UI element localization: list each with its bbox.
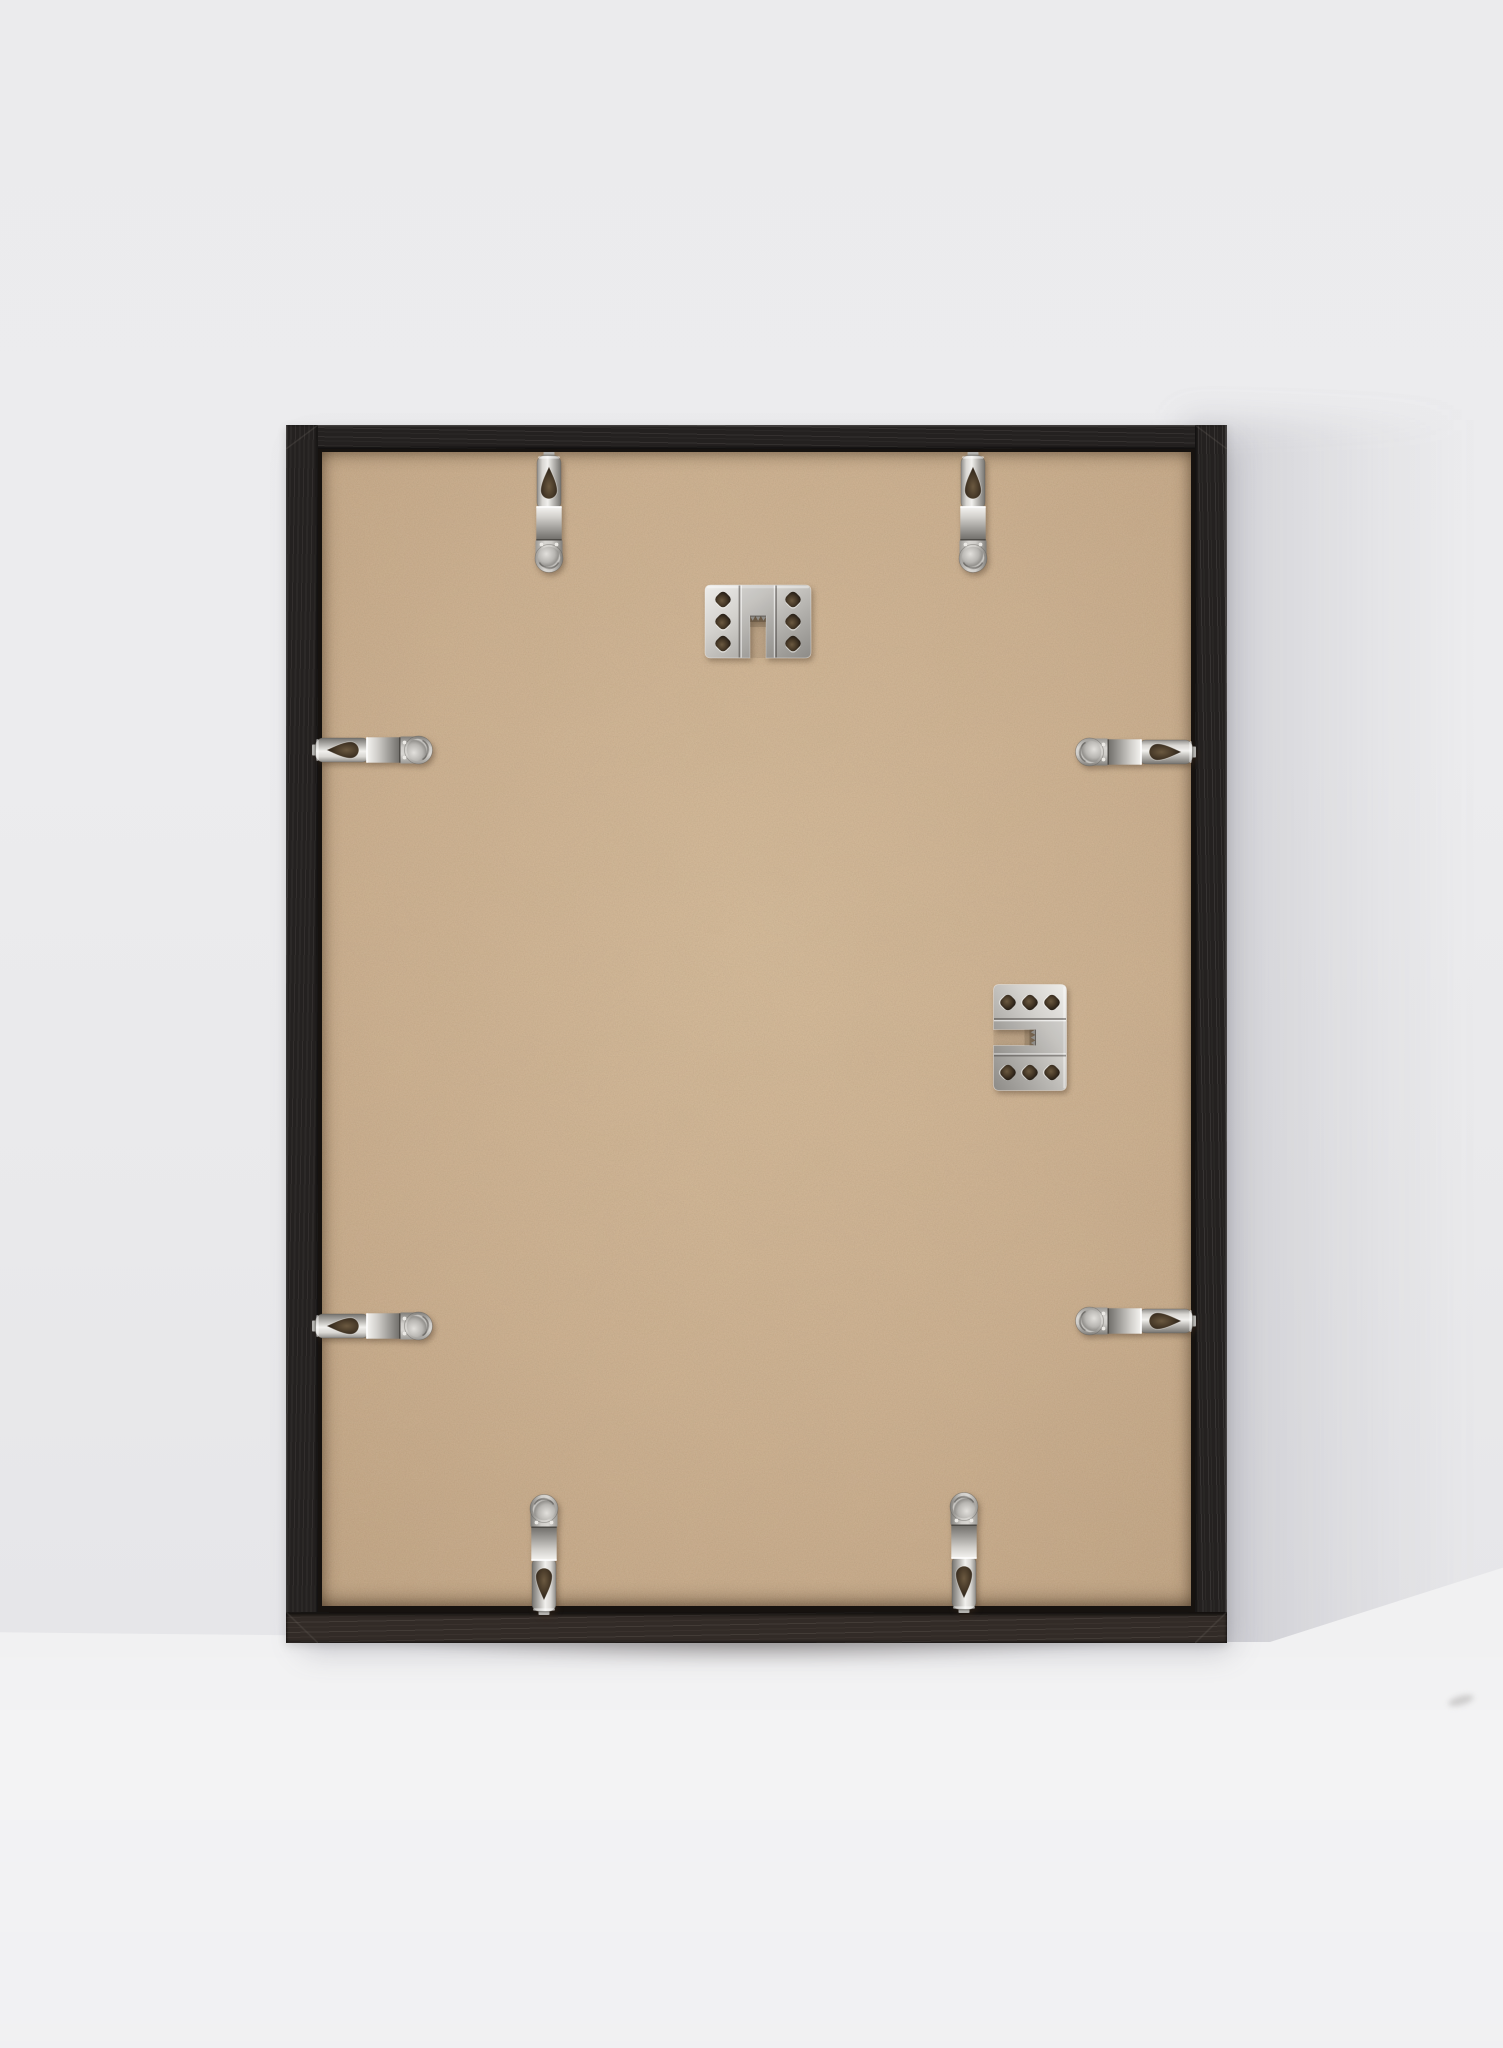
hardware-layer [0, 0, 1503, 2048]
spring-clip-icon [1072, 1302, 1196, 1340]
photo-canvas [0, 0, 1503, 2048]
spring-clip-icon [954, 452, 992, 576]
right-lower-spring-clip [1072, 1302, 1196, 1340]
bottom-right-spring-clip [945, 1489, 983, 1613]
spring-clip-icon [1072, 733, 1196, 771]
bottom-left-spring-clip [525, 1491, 563, 1615]
spring-clip-icon [312, 1307, 436, 1345]
sawtooth-hanger-landscape [992, 982, 1069, 1092]
spring-clip-icon [945, 1489, 983, 1613]
spring-clip-icon [530, 452, 568, 576]
sawtooth-hanger-icon [703, 583, 813, 660]
left-upper-spring-clip [312, 731, 436, 769]
top-right-spring-clip [954, 452, 992, 576]
spring-clip-icon [525, 1491, 563, 1615]
right-upper-spring-clip [1072, 733, 1196, 771]
left-lower-spring-clip [312, 1307, 436, 1345]
top-left-spring-clip [530, 452, 568, 576]
sawtooth-hanger-portrait [703, 583, 813, 660]
spring-clip-icon [312, 731, 436, 769]
sawtooth-hanger-icon [992, 982, 1069, 1092]
